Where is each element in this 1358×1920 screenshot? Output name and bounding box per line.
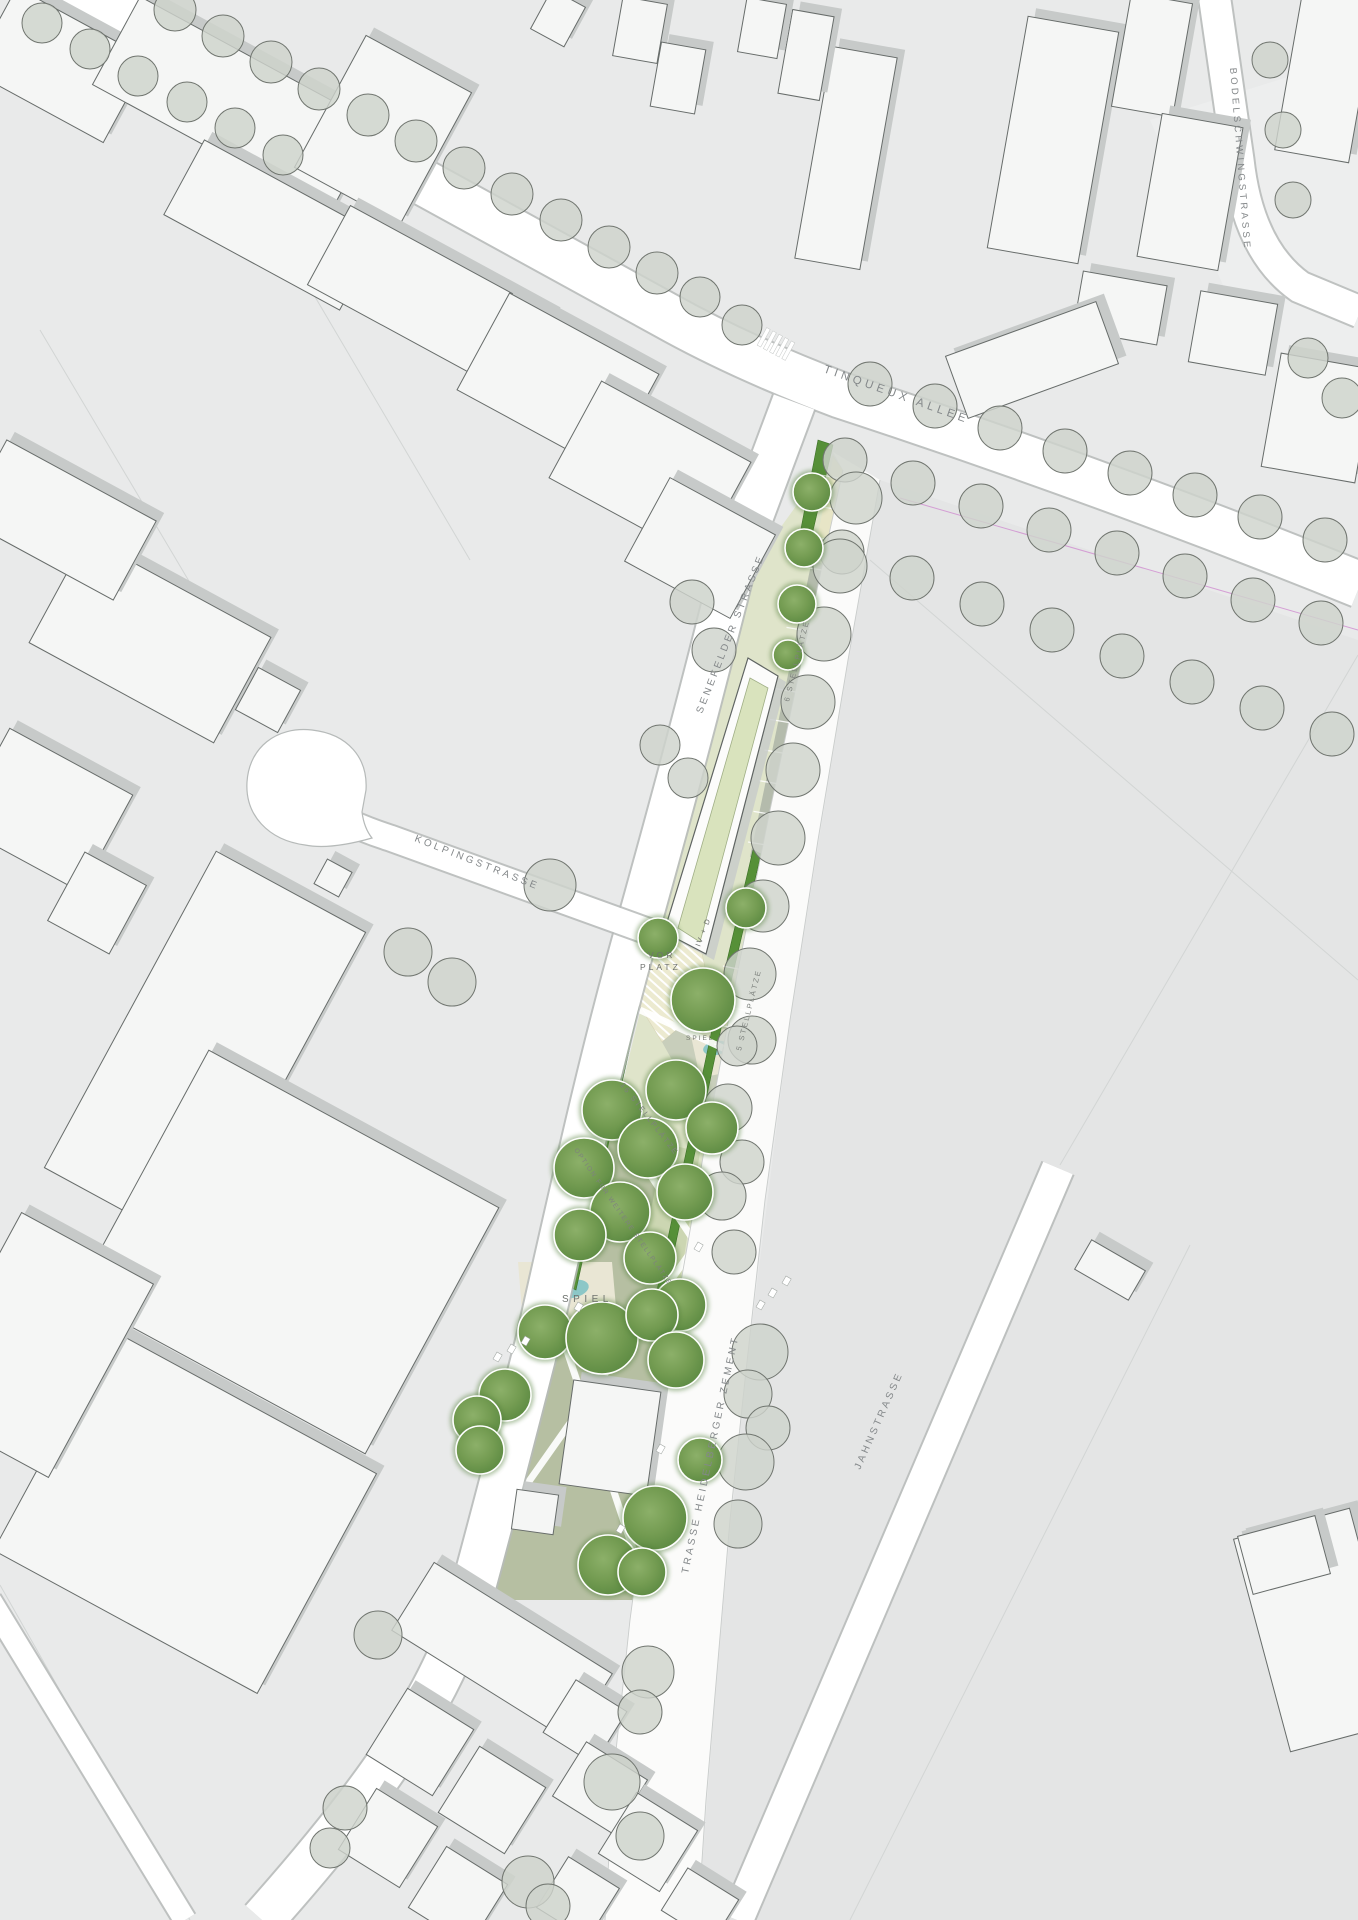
site-plan-drawing: TINQUEUX ALLEE BODELSCHWINGSTRASSE SENEF… [0, 0, 1358, 1920]
existing-tree [1252, 42, 1288, 78]
existing-tree [636, 252, 678, 294]
existing-tree [766, 743, 820, 797]
existing-tree [323, 1786, 367, 1830]
existing-tree [1288, 338, 1328, 378]
label-spiel-small: SPIEL [686, 1035, 714, 1042]
existing-tree [298, 68, 340, 110]
new-tree [785, 529, 823, 567]
existing-tree [588, 226, 630, 268]
site-plan-canvas: TINQUEUX ALLEE BODELSCHWINGSTRASSE SENEF… [0, 0, 1358, 1920]
existing-tree [712, 1230, 756, 1274]
building [559, 1380, 661, 1496]
label-vorplatz-line2: PLATZ [640, 962, 681, 972]
existing-tree [491, 173, 533, 215]
existing-tree [1030, 608, 1074, 652]
existing-tree [167, 82, 207, 122]
existing-tree [830, 472, 882, 524]
existing-tree [1163, 554, 1207, 598]
existing-tree [347, 94, 389, 136]
new-tree [623, 1486, 687, 1550]
existing-tree [680, 277, 720, 317]
existing-tree [1303, 518, 1347, 562]
existing-tree [118, 56, 158, 96]
existing-tree [890, 556, 934, 600]
new-tree [657, 1164, 713, 1220]
existing-tree [960, 582, 1004, 626]
existing-tree [1238, 495, 1282, 539]
new-tree [793, 473, 831, 511]
existing-tree [584, 1754, 640, 1810]
existing-tree [751, 811, 805, 865]
existing-tree [1095, 531, 1139, 575]
existing-tree [616, 1812, 664, 1860]
label-vorplatz-line1: VOR [648, 950, 675, 960]
new-tree [686, 1102, 738, 1154]
existing-tree [1027, 508, 1071, 552]
existing-tree [1173, 473, 1217, 517]
existing-tree [1043, 429, 1087, 473]
existing-tree [1170, 660, 1214, 704]
existing-tree [250, 41, 292, 83]
existing-tree [1275, 182, 1311, 218]
existing-tree [540, 199, 582, 241]
existing-tree [668, 758, 708, 798]
existing-tree [1100, 634, 1144, 678]
existing-tree [215, 108, 255, 148]
existing-tree [263, 135, 303, 175]
existing-tree [618, 1690, 662, 1734]
existing-tree [354, 1611, 402, 1659]
existing-tree [1299, 601, 1343, 645]
building [1188, 291, 1277, 375]
existing-tree [1231, 578, 1275, 622]
existing-tree [718, 1434, 774, 1490]
existing-tree [428, 958, 476, 1006]
existing-tree [1108, 451, 1152, 495]
building [511, 1489, 558, 1534]
label-spiel-meadow: SPIEL [562, 1294, 613, 1305]
existing-tree [395, 120, 437, 162]
existing-tree [1322, 378, 1358, 418]
existing-tree [670, 580, 714, 624]
existing-tree [202, 15, 244, 57]
new-tree [648, 1332, 704, 1388]
existing-tree [22, 3, 62, 43]
existing-tree [1240, 686, 1284, 730]
existing-tree [70, 29, 110, 69]
existing-tree [891, 461, 935, 505]
existing-tree [384, 928, 432, 976]
new-tree [778, 585, 816, 623]
existing-tree [640, 725, 680, 765]
existing-tree [714, 1500, 762, 1548]
new-tree [618, 1548, 666, 1596]
new-tree [456, 1426, 504, 1474]
new-tree [554, 1209, 606, 1261]
new-tree [671, 968, 735, 1032]
existing-tree [1265, 112, 1301, 148]
existing-tree [978, 406, 1022, 450]
existing-tree [310, 1828, 350, 1868]
existing-tree [443, 147, 485, 189]
new-tree [726, 888, 766, 928]
existing-tree [959, 484, 1003, 528]
existing-tree [722, 305, 762, 345]
existing-tree [622, 1646, 674, 1698]
existing-tree [1310, 712, 1354, 756]
